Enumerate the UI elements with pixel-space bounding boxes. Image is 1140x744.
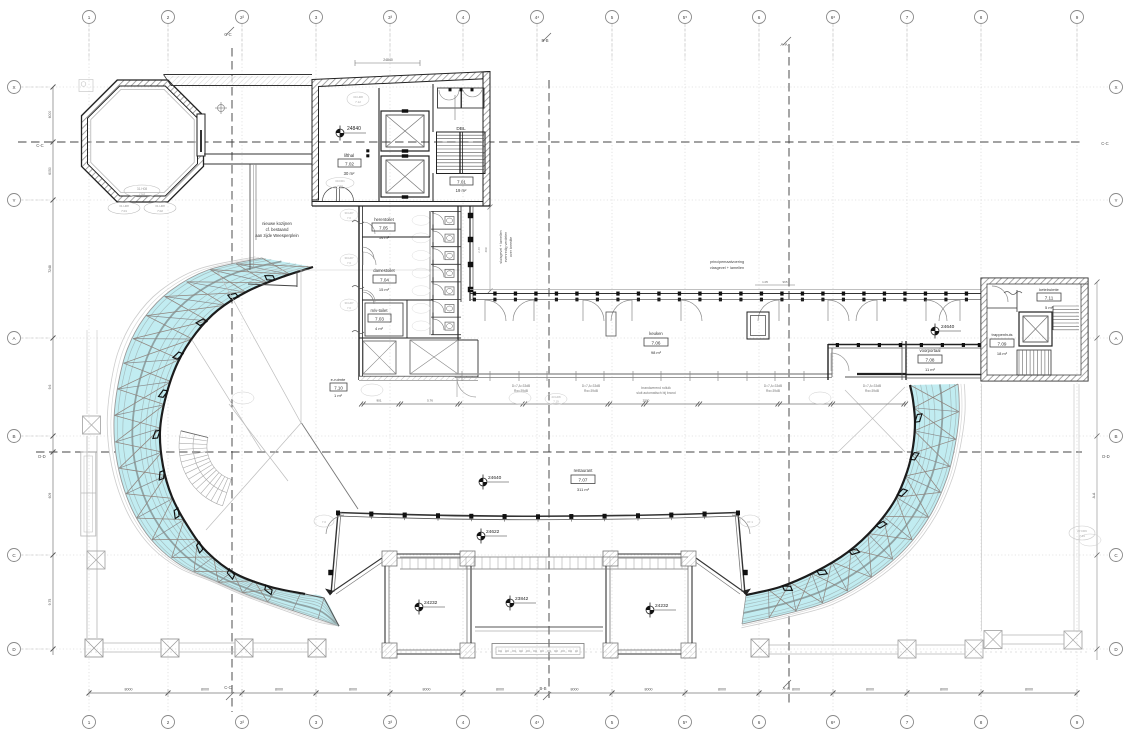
svg-text:8: 8 [980, 720, 983, 725]
svg-text:30.H07: 30.H07 [344, 301, 353, 305]
svg-text:trappenhuis: trappenhuis [992, 332, 1013, 337]
svg-text:9.6: 9.6 [48, 385, 52, 390]
svg-text:8000: 8000 [349, 688, 357, 692]
svg-text:1: 1 [88, 720, 91, 725]
svg-text:1 m²: 1 m² [334, 393, 343, 398]
svg-text:aan zijde Weesperplein: aan zijde Weesperplein [255, 233, 299, 238]
svg-text:30.H07: 30.H07 [344, 256, 353, 260]
svg-text:98 m²: 98 m² [651, 350, 662, 355]
svg-text:7.02: 7.02 [139, 192, 145, 196]
svg-text:A-A: A-A [1092, 492, 1096, 498]
svg-text:B: B [12, 434, 15, 439]
svg-text:A-A: A-A [783, 686, 790, 691]
svg-text:7.0: 7.0 [347, 306, 351, 310]
svg-text:7: 7 [906, 15, 909, 20]
svg-text:7.11: 7.11 [1045, 295, 1054, 300]
svg-text:609: 609 [48, 493, 52, 499]
svg-text:C-C: C-C [36, 143, 43, 148]
svg-text:7.08: 7.08 [926, 357, 935, 362]
svg-text:5⁵: 5⁵ [683, 15, 688, 20]
svg-text:Rw=39dB: Rw=39dB [865, 389, 879, 393]
svg-text:7.0: 7.0 [347, 216, 351, 220]
svg-text:Rw=39dB: Rw=39dB [766, 389, 780, 393]
svg-text:6050: 6050 [48, 167, 52, 175]
svg-text:Y: Y [12, 198, 15, 203]
svg-text:2500: 2500 [643, 399, 650, 403]
svg-text:8000: 8000 [125, 688, 133, 692]
svg-text:8000: 8000 [496, 688, 504, 692]
svg-text:7.02: 7.02 [157, 209, 163, 213]
svg-text:30 m²: 30 m² [344, 171, 355, 176]
svg-text:7.05: 7.05 [379, 225, 388, 230]
svg-text:2²: 2² [240, 720, 245, 725]
svg-text:8000: 8000 [792, 688, 800, 692]
svg-text:2: 2 [167, 15, 170, 20]
svg-text:voorportaal: voorportaal [920, 348, 941, 353]
svg-text:7.01: 7.01 [457, 179, 466, 184]
svg-text:3³: 3³ [388, 15, 393, 20]
svg-text:D=7,A=33dB: D=7,A=33dB [582, 384, 600, 388]
svg-text:24840: 24840 [347, 126, 361, 132]
svg-text:4⁴: 4⁴ [535, 15, 540, 20]
svg-text:D=7,A=33dB: D=7,A=33dB [764, 384, 782, 388]
svg-text:keuken: keuken [649, 331, 663, 336]
svg-text:8000: 8000 [275, 688, 283, 692]
svg-text:7.10: 7.10 [334, 385, 343, 390]
svg-text:damestoilet: damestoilet [373, 268, 395, 273]
svg-text:m/v-toilet: m/v-toilet [371, 308, 389, 313]
svg-text:sluit automatisch bij brand: sluit automatisch bij brand [636, 391, 675, 395]
svg-text:7.01: 7.01 [337, 184, 343, 188]
svg-text:7.24: 7.24 [1079, 534, 1085, 538]
svg-text:nieuwe kozijnen: nieuwe kozijnen [262, 221, 292, 226]
svg-text:lifthal: lifthal [344, 153, 354, 158]
svg-text:15 m²: 15 m² [379, 287, 390, 292]
svg-text:7.04: 7.04 [380, 277, 389, 282]
svg-text:principemaatvoering: principemaatvoering [710, 260, 744, 264]
svg-text:24232: 24232 [655, 603, 669, 609]
svg-text:D=7,A=33dB: D=7,A=33dB [863, 384, 881, 388]
svg-text:9: 9 [1076, 720, 1079, 725]
svg-text:D-D: D-D [1102, 454, 1109, 459]
svg-text:311 m²: 311 m² [577, 487, 590, 492]
svg-text:D=7,A=33dB: D=7,A=33dB [512, 384, 530, 388]
svg-text:8: 8 [980, 15, 983, 20]
svg-text:30.D01: 30.D01 [335, 179, 345, 183]
svg-text:cf. bestaand: cf. bestaand [266, 227, 289, 232]
svg-text:7.02: 7.02 [345, 161, 354, 166]
svg-text:ketelruimte: ketelruimte [1039, 287, 1059, 292]
svg-text:24640: 24640 [941, 324, 955, 330]
svg-text:5 m²: 5 m² [1045, 305, 1054, 310]
svg-text:C-C: C-C [224, 685, 231, 690]
svg-text:901: 901 [376, 399, 381, 403]
svg-text:409: 409 [484, 247, 488, 252]
svg-text:1: 1 [88, 15, 91, 20]
svg-text:27.D09: 27.D09 [1077, 529, 1087, 533]
svg-text:8000: 8000 [201, 688, 209, 692]
svg-text:Rw=39dB: Rw=39dB [584, 389, 598, 393]
svg-text:6⁶: 6⁶ [831, 720, 836, 725]
svg-text:evenredig verdelen: evenredig verdelen [504, 232, 508, 263]
svg-text:B: B [1114, 434, 1117, 439]
svg-text:7.06: 7.06 [652, 340, 661, 345]
svg-text:sluisgevel + lamellen: sluisgevel + lamellen [499, 230, 503, 263]
svg-text:9.75: 9.75 [48, 599, 52, 606]
svg-text:24640: 24640 [488, 475, 502, 481]
svg-text:4: 4 [462, 720, 465, 725]
svg-text:DBL: DBL [456, 126, 466, 132]
svg-text:6: 6 [758, 720, 761, 725]
svg-text:X: X [12, 85, 15, 90]
svg-text:8000: 8000 [940, 688, 948, 692]
svg-text:7.12: 7.12 [355, 100, 361, 104]
svg-text:D-D: D-D [38, 454, 45, 459]
svg-text:restaurant: restaurant [574, 468, 594, 473]
svg-text:e-ruimte: e-ruimte [331, 377, 346, 382]
svg-text:8000: 8000 [423, 688, 431, 692]
svg-text:vlasgevel + lamellen: vlasgevel + lamellen [710, 266, 744, 270]
svg-text:7.19: 7.19 [553, 400, 559, 404]
svg-text:14 m²: 14 m² [379, 235, 390, 240]
svg-text:7.01: 7.01 [121, 209, 127, 213]
svg-text:Y: Y [1114, 198, 1117, 203]
svg-text:7.09: 7.09 [998, 341, 1007, 346]
svg-text:8000: 8000 [571, 688, 579, 692]
svg-text:11 m²: 11 m² [925, 367, 936, 372]
svg-text:1.05: 1.05 [762, 280, 768, 284]
svg-text:3: 3 [315, 720, 318, 725]
svg-text:3: 3 [315, 15, 318, 20]
svg-text:7248: 7248 [48, 265, 52, 273]
svg-text:24232: 24232 [424, 600, 438, 606]
svg-text:B-B: B-B [540, 686, 547, 691]
svg-text:4⁴: 4⁴ [535, 720, 540, 725]
svg-text:2²: 2² [240, 15, 245, 20]
svg-text:31.H08: 31.H08 [119, 204, 129, 208]
svg-text:965: 965 [782, 280, 787, 284]
svg-text:2.48: 2.48 [477, 247, 481, 253]
svg-text:8000: 8000 [645, 688, 653, 692]
svg-text:brandwerend rolluik: brandwerend rolluik [641, 386, 671, 390]
svg-text:X: X [1114, 85, 1117, 90]
svg-text:19 m²: 19 m² [456, 188, 467, 193]
svg-text:30.H07: 30.H07 [344, 211, 353, 215]
svg-text:4: 4 [462, 15, 465, 20]
svg-text:6⁶: 6⁶ [831, 15, 836, 20]
svg-text:8000: 8000 [866, 688, 874, 692]
svg-text:6000: 6000 [48, 111, 52, 119]
svg-text:A-A: A-A [781, 42, 788, 47]
svg-text:23842: 23842 [515, 596, 529, 602]
svg-text:8000: 8000 [1025, 688, 1033, 692]
svg-text:C-C: C-C [1101, 141, 1108, 146]
svg-text:2: 2 [167, 720, 170, 725]
svg-text:8000: 8000 [718, 688, 726, 692]
svg-text:7: 7 [906, 720, 909, 725]
svg-text:24622: 24622 [486, 529, 500, 535]
svg-text:7.0: 7.0 [347, 261, 351, 265]
svg-text:7.0: 7.0 [322, 520, 327, 524]
svg-text:3³: 3³ [388, 720, 393, 725]
svg-text:18 m²: 18 m² [997, 351, 1008, 356]
svg-text:07.1: 07.1 [747, 520, 753, 524]
svg-text:5: 5 [611, 15, 614, 20]
svg-text:7.07: 7.07 [579, 478, 588, 483]
svg-text:5⁵: 5⁵ [683, 720, 688, 725]
svg-text:24840: 24840 [383, 58, 393, 62]
svg-text:31.H08: 31.H08 [155, 204, 165, 208]
svg-text:6: 6 [758, 15, 761, 20]
svg-text:31.H08: 31.H08 [137, 187, 148, 191]
svg-text:herentoilet: herentoilet [374, 217, 394, 222]
svg-text:5: 5 [611, 720, 614, 725]
svg-text:30.H08: 30.H08 [353, 95, 363, 99]
svg-text:7.03: 7.03 [375, 316, 384, 321]
svg-text:over breedte: over breedte [509, 237, 513, 257]
svg-text:5.76: 5.76 [427, 399, 433, 403]
svg-text:9: 9 [1076, 15, 1079, 20]
svg-text:4 m²: 4 m² [375, 326, 384, 331]
svg-text:23.H08: 23.H08 [551, 395, 560, 399]
